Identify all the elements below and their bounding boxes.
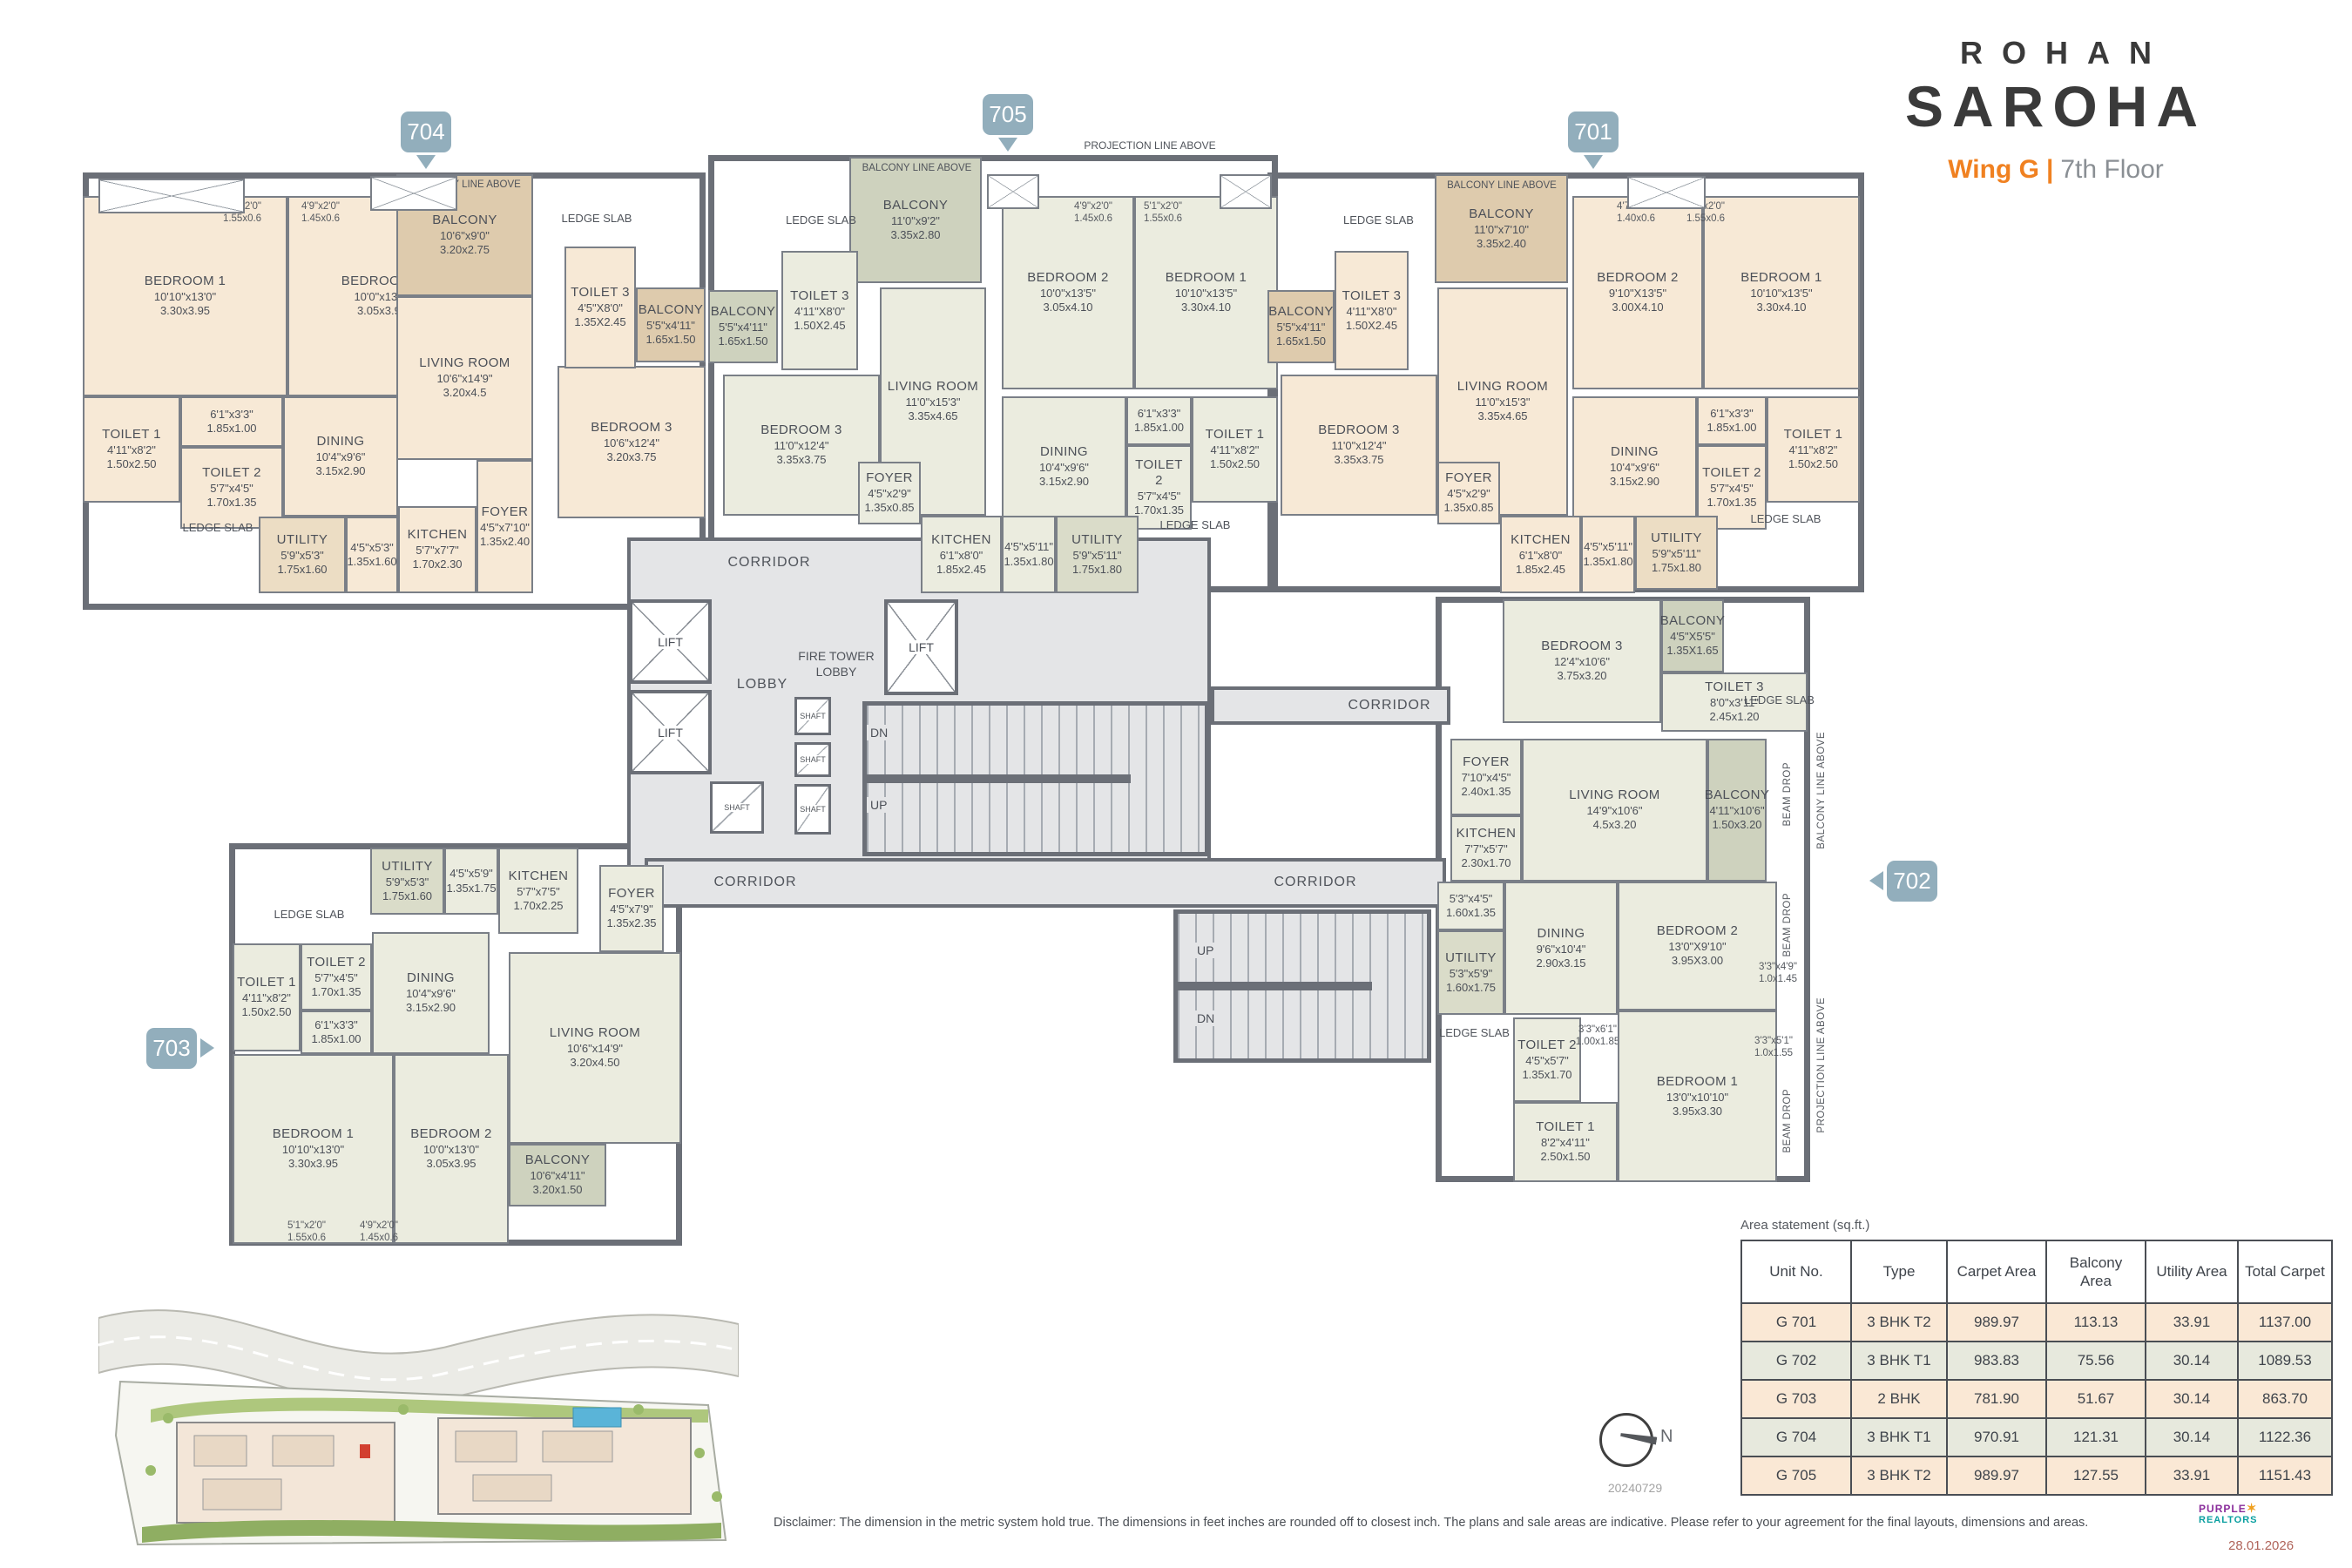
room-705-balcony-main: BALCONY11'0"x9'2"3.35x2.80 <box>849 157 982 283</box>
room-705-passage2: 4'5"x5'11"1.35x1.80 <box>1002 516 1056 593</box>
room-705-balcony-small: BALCONY5'5"x4'11"1.65x1.50 <box>708 290 778 363</box>
ledge-slab-702: LEDGE SLAB <box>1433 1026 1516 1040</box>
col-type: Type <box>1851 1240 1947 1303</box>
niche-702-a: 3'3"x4'9"1.0x1.45 <box>1747 958 1809 990</box>
niche-703-a: 5'1"x2'0"1.55x0.6 <box>272 1218 341 1247</box>
room-702-balcony2: BALCONY4'11"x10'6"1.50x3.20 <box>1707 739 1767 882</box>
badge-702-arrow-icon <box>1869 871 1883 890</box>
room-702-foyer: FOYER7'10"x4'5"2.40x1.35 <box>1450 739 1522 815</box>
room-701-balcony-small: BALCONY5'5"x4'11"1.65x1.50 <box>1267 290 1335 363</box>
col-unit-no: Unit No. <box>1741 1240 1851 1303</box>
badge-704: 704 <box>401 112 451 152</box>
wing-label: Wing G <box>1948 155 2039 184</box>
floor-label: 7th Floor <box>2060 155 2163 184</box>
badge-705-arrow-icon <box>998 138 1017 152</box>
room-702-utility: UTILITY5'3"x5'9"1.60x1.75 <box>1437 930 1504 1015</box>
niche-705-a: 4'9"x2'0"1.45x0.6 <box>1058 199 1128 228</box>
badge-703: 703 <box>146 1028 197 1069</box>
col-balcony-area: Balcony Area <box>2046 1240 2146 1303</box>
table-row: G 7032 BHK781.9051.6730.14863.70 <box>1741 1380 2332 1418</box>
projection-line-above-705: PROJECTION LINE ABOVE <box>1076 139 1224 152</box>
area-statement: Area statement (sq.ft.) Unit No. Type Ca… <box>1740 1218 2333 1496</box>
room-704-living: LIVING ROOM10'6"x14'9"3.20x4.5 <box>396 296 533 460</box>
corridor-label-1: CORRIDOR <box>721 554 817 571</box>
lift-1: LIFT <box>629 599 712 684</box>
stair2-dn-label: DN <box>1193 1010 1218 1026</box>
room-704-passage2: 4'5"x5'3"1.35x1.60 <box>346 517 398 593</box>
room-702-kitchen: KITCHEN7'7"x5'7"2.30x1.70 <box>1450 815 1522 882</box>
shaft-3: SHAFT <box>710 781 764 834</box>
area-table: Unit No. Type Carpet Area Balcony Area U… <box>1740 1240 2333 1496</box>
room-701-toilet1: TOILET 14'11"x8'2"1.50x2.50 <box>1767 396 1860 503</box>
plan-date: 28.01.2026 <box>2228 1538 2294 1553</box>
window-hatch-icon <box>1220 174 1272 209</box>
room-701-toilet3: TOILET 34'11"X8'0"1.50X2.45 <box>1335 251 1409 370</box>
room-703-bedroom2: BEDROOM 210'0"x13'0"3.05x3.95 <box>394 1054 509 1244</box>
purple-realtors-logo: PURPLE✶ REALTORS <box>2199 1502 2258 1525</box>
beam-drop-1: BEAM DROP <box>1782 762 1793 827</box>
balcony-line-above-705: BALCONY LINE ABOVE <box>854 162 980 174</box>
lift-3: LIFT <box>884 599 958 695</box>
corridor-label-2: CORRIDOR <box>707 874 803 891</box>
badge-705: 705 <box>983 94 1033 135</box>
north-label: N <box>1660 1427 1673 1447</box>
area-table-header-row: Unit No. Type Carpet Area Balcony Area U… <box>1741 1240 2332 1303</box>
sparkle-icon: ✶ <box>2247 1501 2258 1515</box>
room-703-toilet2: TOILET 25'7"x4'5"1.70x1.35 <box>301 943 372 1010</box>
room-704-bedroom3: BEDROOM 310'6"x12'4"3.20x3.75 <box>558 366 706 518</box>
room-704-passage: 6'1"x3'3"1.85x1.00 <box>180 396 283 447</box>
shaft-1: SHAFT <box>794 697 831 735</box>
staircase-main <box>862 701 1209 856</box>
col-utility-area: Utility Area <box>2146 1240 2238 1303</box>
room-701-foyer: FOYER4'5"x2'9"1.35x0.85 <box>1437 462 1500 524</box>
stair2-up-label: UP <box>1193 943 1217 958</box>
room-704-toilet1: TOILET 14'11"x8'2"1.50x2.50 <box>83 396 180 503</box>
room-701-passage: 6'1"x3'3"1.85x1.00 <box>1697 396 1767 445</box>
col-carpet-area: Carpet Area <box>1947 1240 2046 1303</box>
floorplan-page: ROHAN SAROHA Wing G|7th Floor CORRIDOR C… <box>0 0 2352 1568</box>
window-hatch-icon <box>98 179 245 213</box>
niche-703-b: 4'9"x2'0"1.45x0.6 <box>344 1218 414 1247</box>
room-702-balcony1: BALCONY4'5"X5'5"1.35X1.65 <box>1661 599 1724 672</box>
room-703-utility: UTILITY5'9"x5'3"1.75x1.60 <box>370 848 444 915</box>
room-703-passage: 4'5"x5'9"1.35x1.75 <box>444 848 498 915</box>
north-compass: N 20240729 <box>1587 1401 1692 1505</box>
room-703-kitchen: KITCHEN5'7"x7'5"1.70x2.25 <box>498 848 578 934</box>
disclaimer-text: Disclaimer: The dimension in the metric … <box>774 1516 2211 1530</box>
table-row: G 7043 BHK T1970.91121.3130.141122.36 <box>1741 1418 2332 1456</box>
room-705-toilet1: TOILET 14'11"x8'2"1.50x2.50 <box>1192 396 1278 503</box>
beam-drop-3: BEAM DROP <box>1782 1089 1793 1153</box>
room-705-toilet3: TOILET 34'11"X8'0"1.50X2.45 <box>781 251 858 370</box>
table-row: G 7013 BHK T2989.97113.1333.911137.00 <box>1741 1303 2332 1342</box>
window-hatch-icon <box>1627 176 1706 209</box>
room-701-passage2: 4'5"x5'11"1.35x1.80 <box>1581 516 1635 593</box>
badge-702: 702 <box>1887 861 1937 902</box>
wing-floor-title: Wing G|7th Floor <box>1812 155 2300 185</box>
plan-code: 20240729 <box>1587 1481 1683 1495</box>
room-704-dining: DINING10'4"x9'6"3.15x2.90 <box>283 396 398 517</box>
brand-line2: SAROHA <box>1812 73 2300 139</box>
badge-701: 701 <box>1568 112 1619 152</box>
room-703-toilet1: TOILET 14'11"x8'2"1.50x2.50 <box>233 943 301 1051</box>
balcony-line-above-702: BALCONY LINE ABOVE <box>1816 732 1827 849</box>
room-702-bedroom3: BEDROOM 312'4"x10'6"3.75x3.20 <box>1503 599 1661 723</box>
ledge-slab-705: LEDGE SLAB <box>784 213 858 227</box>
ledge-slab-701: LEDGE SLAB <box>1342 213 1416 227</box>
site-key-plan <box>98 1279 739 1566</box>
col-total-carpet: Total Carpet <box>2238 1240 2332 1303</box>
room-702-living: LIVING ROOM14'9"x10'6"4.5x3.20 <box>1522 739 1707 882</box>
table-row: G 7023 BHK T1983.8375.5630.141089.53 <box>1741 1342 2332 1380</box>
badge-703-arrow-icon <box>200 1038 214 1058</box>
separator: | <box>2039 155 2060 184</box>
logo-line1: PURPLE✶ <box>2199 1502 2258 1515</box>
badge-701-arrow-icon <box>1584 155 1603 169</box>
brand-line1: ROHAN <box>1812 35 2300 71</box>
room-704-toilet3: TOILET 34'5"X8'0"1.35X2.45 <box>564 247 636 368</box>
room-702-toilet1: TOILET 18'2"x4'11"2.50x1.50 <box>1513 1102 1618 1182</box>
niche-705-b: 5'1"x2'0"1.55x0.6 <box>1128 199 1198 228</box>
room-702-bedroom2: BEDROOM 213'0"X9'10"3.95X3.00 <box>1618 882 1777 1010</box>
fire-tower-lobby-label: FIRE TOWER LOBBY <box>788 649 884 679</box>
room-705-bedroom3: BEDROOM 311'0"x12'4"3.35x3.75 <box>723 375 880 516</box>
ledge-slab-704: LEDGE SLAB <box>152 521 283 535</box>
room-704-kitchen: KITCHEN5'7"x7'7"1.70x2.30 <box>398 506 476 593</box>
ledge-slab-702b: LEDGE SLAB <box>1738 693 1821 707</box>
ledge-slab-705b: LEDGE SLAB <box>1152 518 1239 532</box>
table-row: G 7053 BHK T2989.97127.5533.911151.43 <box>1741 1456 2332 1495</box>
beam-drop-2: BEAM DROP <box>1782 893 1793 957</box>
room-703-bedroom1: BEDROOM 110'10"x13'0"3.30x3.95 <box>233 1054 394 1244</box>
stair-dn-label: DN <box>867 725 891 740</box>
balcony-line-above-701: BALCONY LINE ABOVE <box>1437 179 1566 192</box>
projection-line-above-702: PROJECTION LINE ABOVE <box>1816 997 1827 1133</box>
brand-block: ROHAN SAROHA Wing G|7th Floor <box>1812 35 2300 185</box>
room-705-passage: 6'1"x3'3"1.85x1.00 <box>1126 396 1192 445</box>
shaft-2: SHAFT <box>794 742 831 777</box>
logo-line2: REALTORS <box>2199 1515 2258 1525</box>
corridor-label-3: CORRIDOR <box>1267 874 1363 891</box>
room-703-foyer: FOYER4'5"x7'9"1.35x2.35 <box>599 865 664 952</box>
room-701-utility: UTILITY5'9"x5'11"1.75x1.80 <box>1635 516 1718 590</box>
window-hatch-icon <box>370 176 457 211</box>
room-701-bedroom3: BEDROOM 311'0"x12'4"3.35x3.75 <box>1281 375 1437 516</box>
room-703-living: LIVING ROOM10'6"x14'9"3.20x4.50 <box>509 952 681 1144</box>
ledge-slab-701b: LEDGE SLAB <box>1729 512 1842 526</box>
window-hatch-icon <box>987 174 1039 209</box>
room-705-kitchen: KITCHEN6'1"x8'0"1.85x2.45 <box>921 516 1002 593</box>
room-705-utility: UTILITY5'9"x5'11"1.75x1.80 <box>1056 516 1139 593</box>
corridor-label-4: CORRIDOR <box>1342 697 1437 714</box>
room-703-passage2: 6'1"x3'3"1.85x1.00 <box>301 1010 372 1054</box>
room-704-balcony-small: BALCONY5'5"x4'11"1.65x1.50 <box>636 287 706 362</box>
ledge-slab-704b: LEDGE SLAB <box>558 212 636 226</box>
shaft-4: SHAFT <box>794 784 831 835</box>
badge-704-arrow-icon <box>416 155 436 169</box>
room-703-balcony: BALCONY10'6"x4'11"3.20x1.50 <box>509 1144 606 1206</box>
area-statement-title: Area statement (sq.ft.) <box>1740 1218 2333 1233</box>
staircase-2 <box>1173 909 1431 1063</box>
niche-704-b: 4'9"x2'0"1.45x0.6 <box>286 199 355 228</box>
stair-up-label: UP <box>867 797 890 813</box>
ledge-slab-703: LEDGE SLAB <box>253 908 366 922</box>
room-701-kitchen: KITCHEN6'1"x8'0"1.85x2.45 <box>1500 516 1581 593</box>
room-702-dining: DINING9'6"x10'4"2.90x3.15 <box>1504 882 1618 1015</box>
lift-2: LIFT <box>629 690 712 774</box>
room-705-foyer: FOYER4'5"x2'9"1.35x0.85 <box>858 462 921 524</box>
room-704-foyer: FOYER4'5"x7'10"1.35x2.40 <box>476 460 533 593</box>
room-702-passage: 5'3"x4'5"1.60x1.35 <box>1437 882 1504 930</box>
room-703-dining: DINING10'4"x9'6"3.15x2.90 <box>372 932 490 1054</box>
niche-702-c: 3'3"x5'1"1.0x1.55 <box>1742 1032 1805 1064</box>
